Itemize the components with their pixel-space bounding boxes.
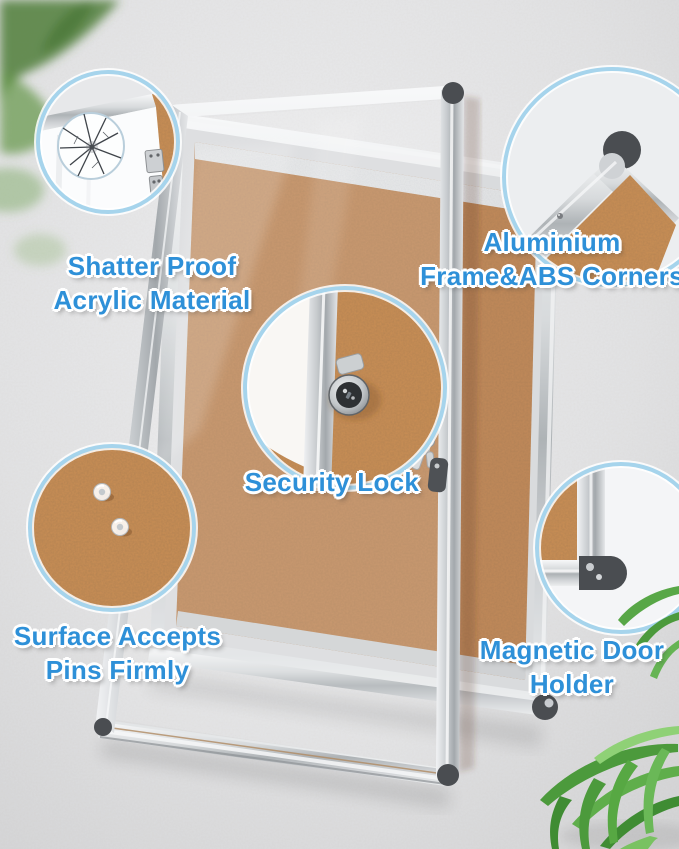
magnet-dot xyxy=(596,574,602,580)
abs-corner-zoom xyxy=(579,556,627,590)
screw xyxy=(557,213,563,219)
magnet-dot xyxy=(586,563,594,571)
label-line: Shatter Proof xyxy=(28,250,276,284)
callout-label-magnetic-door: Magnetic Door Holder xyxy=(462,634,679,702)
abs-corner-cap xyxy=(442,82,464,104)
callout-label-aluminium-frame: Aluminium Frame&ABS Corners xyxy=(412,226,679,294)
label-line: Magnetic Door xyxy=(462,634,679,668)
abs-corner-cap xyxy=(94,718,112,736)
scene-illustration xyxy=(0,0,679,849)
pins-zoom-circle xyxy=(30,446,194,610)
label-line: Holder xyxy=(462,668,679,702)
label-line: Aluminium xyxy=(412,226,679,260)
label-line: Acrylic Material xyxy=(28,284,276,318)
abs-corner-cap xyxy=(437,764,459,786)
callout-label-security-lock: Security Lock xyxy=(227,466,437,500)
callout-label-pins: Surface Accepts Pins Firmly xyxy=(0,620,235,688)
product-image: Shatter Proof Acrylic Material Aluminium… xyxy=(0,0,679,849)
label-line: Security Lock xyxy=(227,466,437,500)
label-line: Frame&ABS Corners xyxy=(412,260,679,294)
callout-label-shatter-proof: Shatter Proof Acrylic Material xyxy=(28,250,276,318)
label-line: Surface Accepts xyxy=(0,620,235,654)
crack-pattern xyxy=(58,113,124,179)
label-line: Pins Firmly xyxy=(0,654,235,688)
